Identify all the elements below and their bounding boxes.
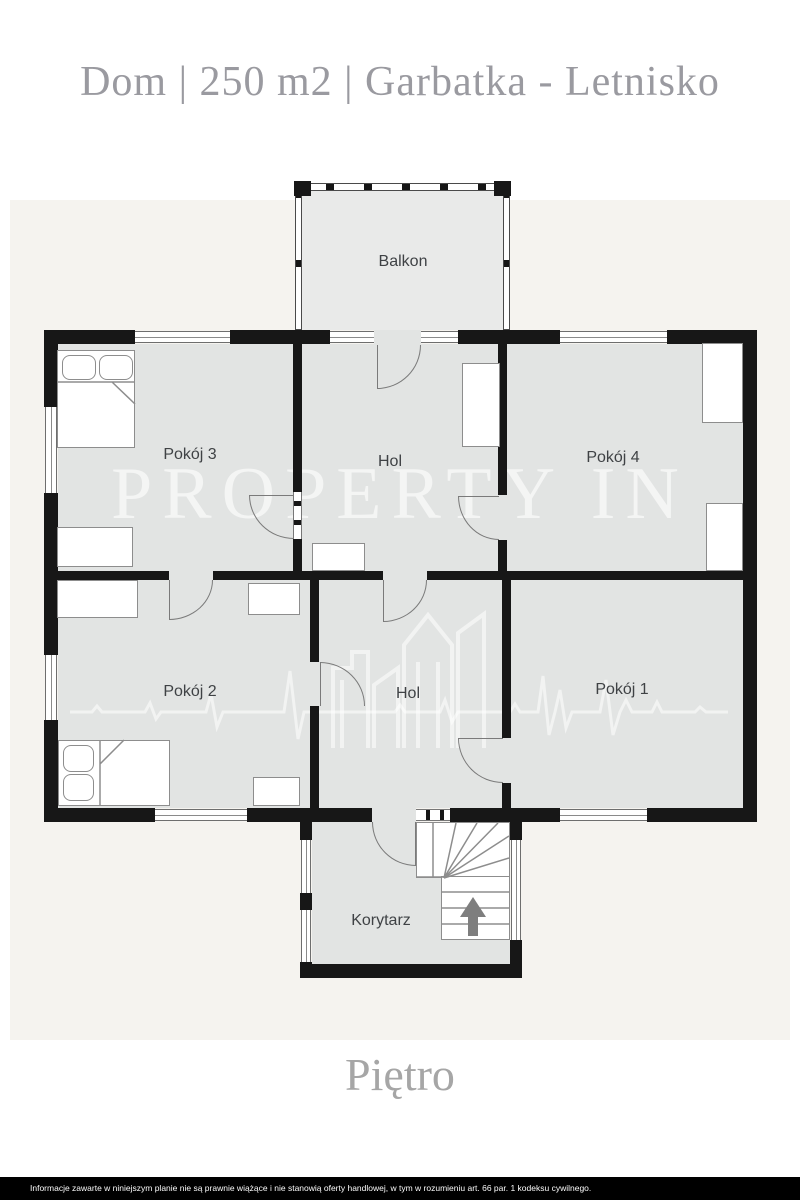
wall-segment: [44, 330, 58, 407]
stair-opening: [416, 809, 450, 821]
window: [301, 840, 311, 893]
wall-segment: [502, 783, 511, 808]
wardrobe: [706, 503, 743, 571]
wall-segment: [300, 893, 312, 910]
dresser: [253, 777, 300, 806]
wardrobe: [462, 363, 500, 447]
wall-segment: [44, 720, 58, 822]
wall-segment: [498, 540, 507, 571]
window: [560, 331, 667, 343]
window: [301, 910, 311, 962]
balcony-railing: [295, 191, 302, 330]
room-label-pokoj-3: Pokój 3: [163, 446, 216, 464]
desk: [57, 527, 133, 567]
balcony-railing: [295, 183, 510, 191]
page-title: Dom | 250 m2 | Garbatka - Letnisko: [0, 58, 800, 106]
window: [45, 655, 57, 720]
wall-segment: [300, 822, 312, 840]
door-opening: [374, 330, 421, 344]
dresser: [312, 543, 365, 571]
window: [421, 331, 458, 343]
wall-segment: [213, 571, 383, 580]
wall-segment: [450, 808, 560, 822]
wall-segment: [44, 808, 155, 822]
wardrobe: [248, 583, 300, 615]
room-label-pokoj-4: Pokój 4: [586, 449, 639, 467]
room-label-balkon: Balkon: [379, 253, 428, 271]
floor-name: Piętro: [0, 1048, 800, 1101]
wall-segment: [458, 330, 560, 344]
window: [45, 407, 57, 493]
room-label-korytarz: Korytarz: [351, 912, 411, 930]
wall-segment: [310, 706, 319, 808]
desk: [57, 580, 138, 618]
balcony-post: [294, 181, 311, 196]
room-label-pokoj-2: Pokój 2: [163, 683, 216, 701]
wall-segment: [58, 571, 169, 580]
stairs: [416, 822, 510, 878]
wall-segment: [300, 964, 522, 978]
wall-segment: [44, 493, 58, 655]
room-label-hol-dolny: Hol: [396, 685, 420, 703]
wardrobe: [702, 343, 743, 423]
balcony-railing: [503, 191, 510, 330]
window: [560, 809, 647, 821]
wall-segment: [510, 822, 522, 840]
pillow: [99, 355, 133, 380]
wall-segment: [310, 580, 319, 662]
wall-segment: [502, 580, 511, 738]
pillow: [63, 745, 94, 772]
wall-segment: [427, 571, 743, 580]
window: [511, 840, 521, 940]
footer-disclaimer-text: Informacje zawarte w niniejszym planie n…: [0, 1177, 800, 1200]
window: [330, 331, 374, 343]
window: [135, 331, 230, 343]
wall-segment: [647, 808, 757, 822]
wall-segment: [293, 538, 302, 571]
wall-segment: [247, 808, 372, 822]
wall-segment: [743, 330, 757, 822]
balcony-post: [494, 181, 511, 196]
wall-segment: [293, 344, 302, 493]
stairs: [441, 876, 510, 940]
room-label-pokoj-1: Pokój 1: [595, 681, 648, 699]
door-opening: [293, 492, 302, 539]
window: [155, 809, 247, 821]
wall-segment: [230, 330, 330, 344]
room-label-hol-gorny: Hol: [378, 453, 402, 471]
pillow: [63, 774, 94, 801]
pillow: [62, 355, 96, 380]
door-opening: [372, 808, 416, 822]
footer-disclaimer-bar: Informacje zawarte w niniejszym planie n…: [0, 1177, 800, 1200]
floor-plan-page: Dom | 250 m2 | Garbatka - Letnisko PROPE…: [0, 0, 800, 1200]
